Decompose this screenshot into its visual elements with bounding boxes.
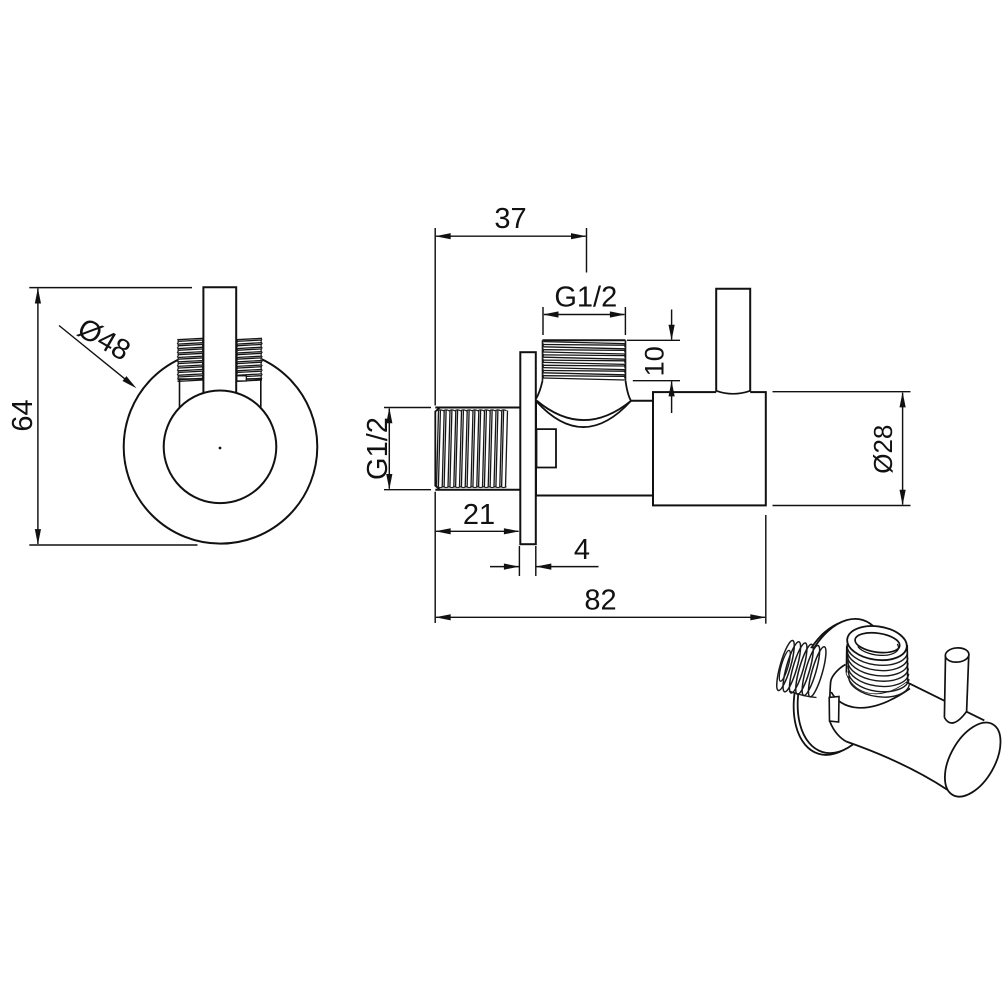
svg-text:4: 4	[574, 534, 590, 566]
svg-text:82: 82	[584, 585, 616, 617]
svg-text:Ø28: Ø28	[868, 425, 898, 474]
svg-text:10: 10	[639, 346, 669, 376]
svg-text:37: 37	[494, 203, 526, 235]
svg-text:G1/2: G1/2	[554, 282, 617, 314]
svg-text:21: 21	[463, 499, 495, 531]
svg-text:G1/2: G1/2	[362, 417, 394, 480]
svg-text:64: 64	[7, 399, 39, 431]
